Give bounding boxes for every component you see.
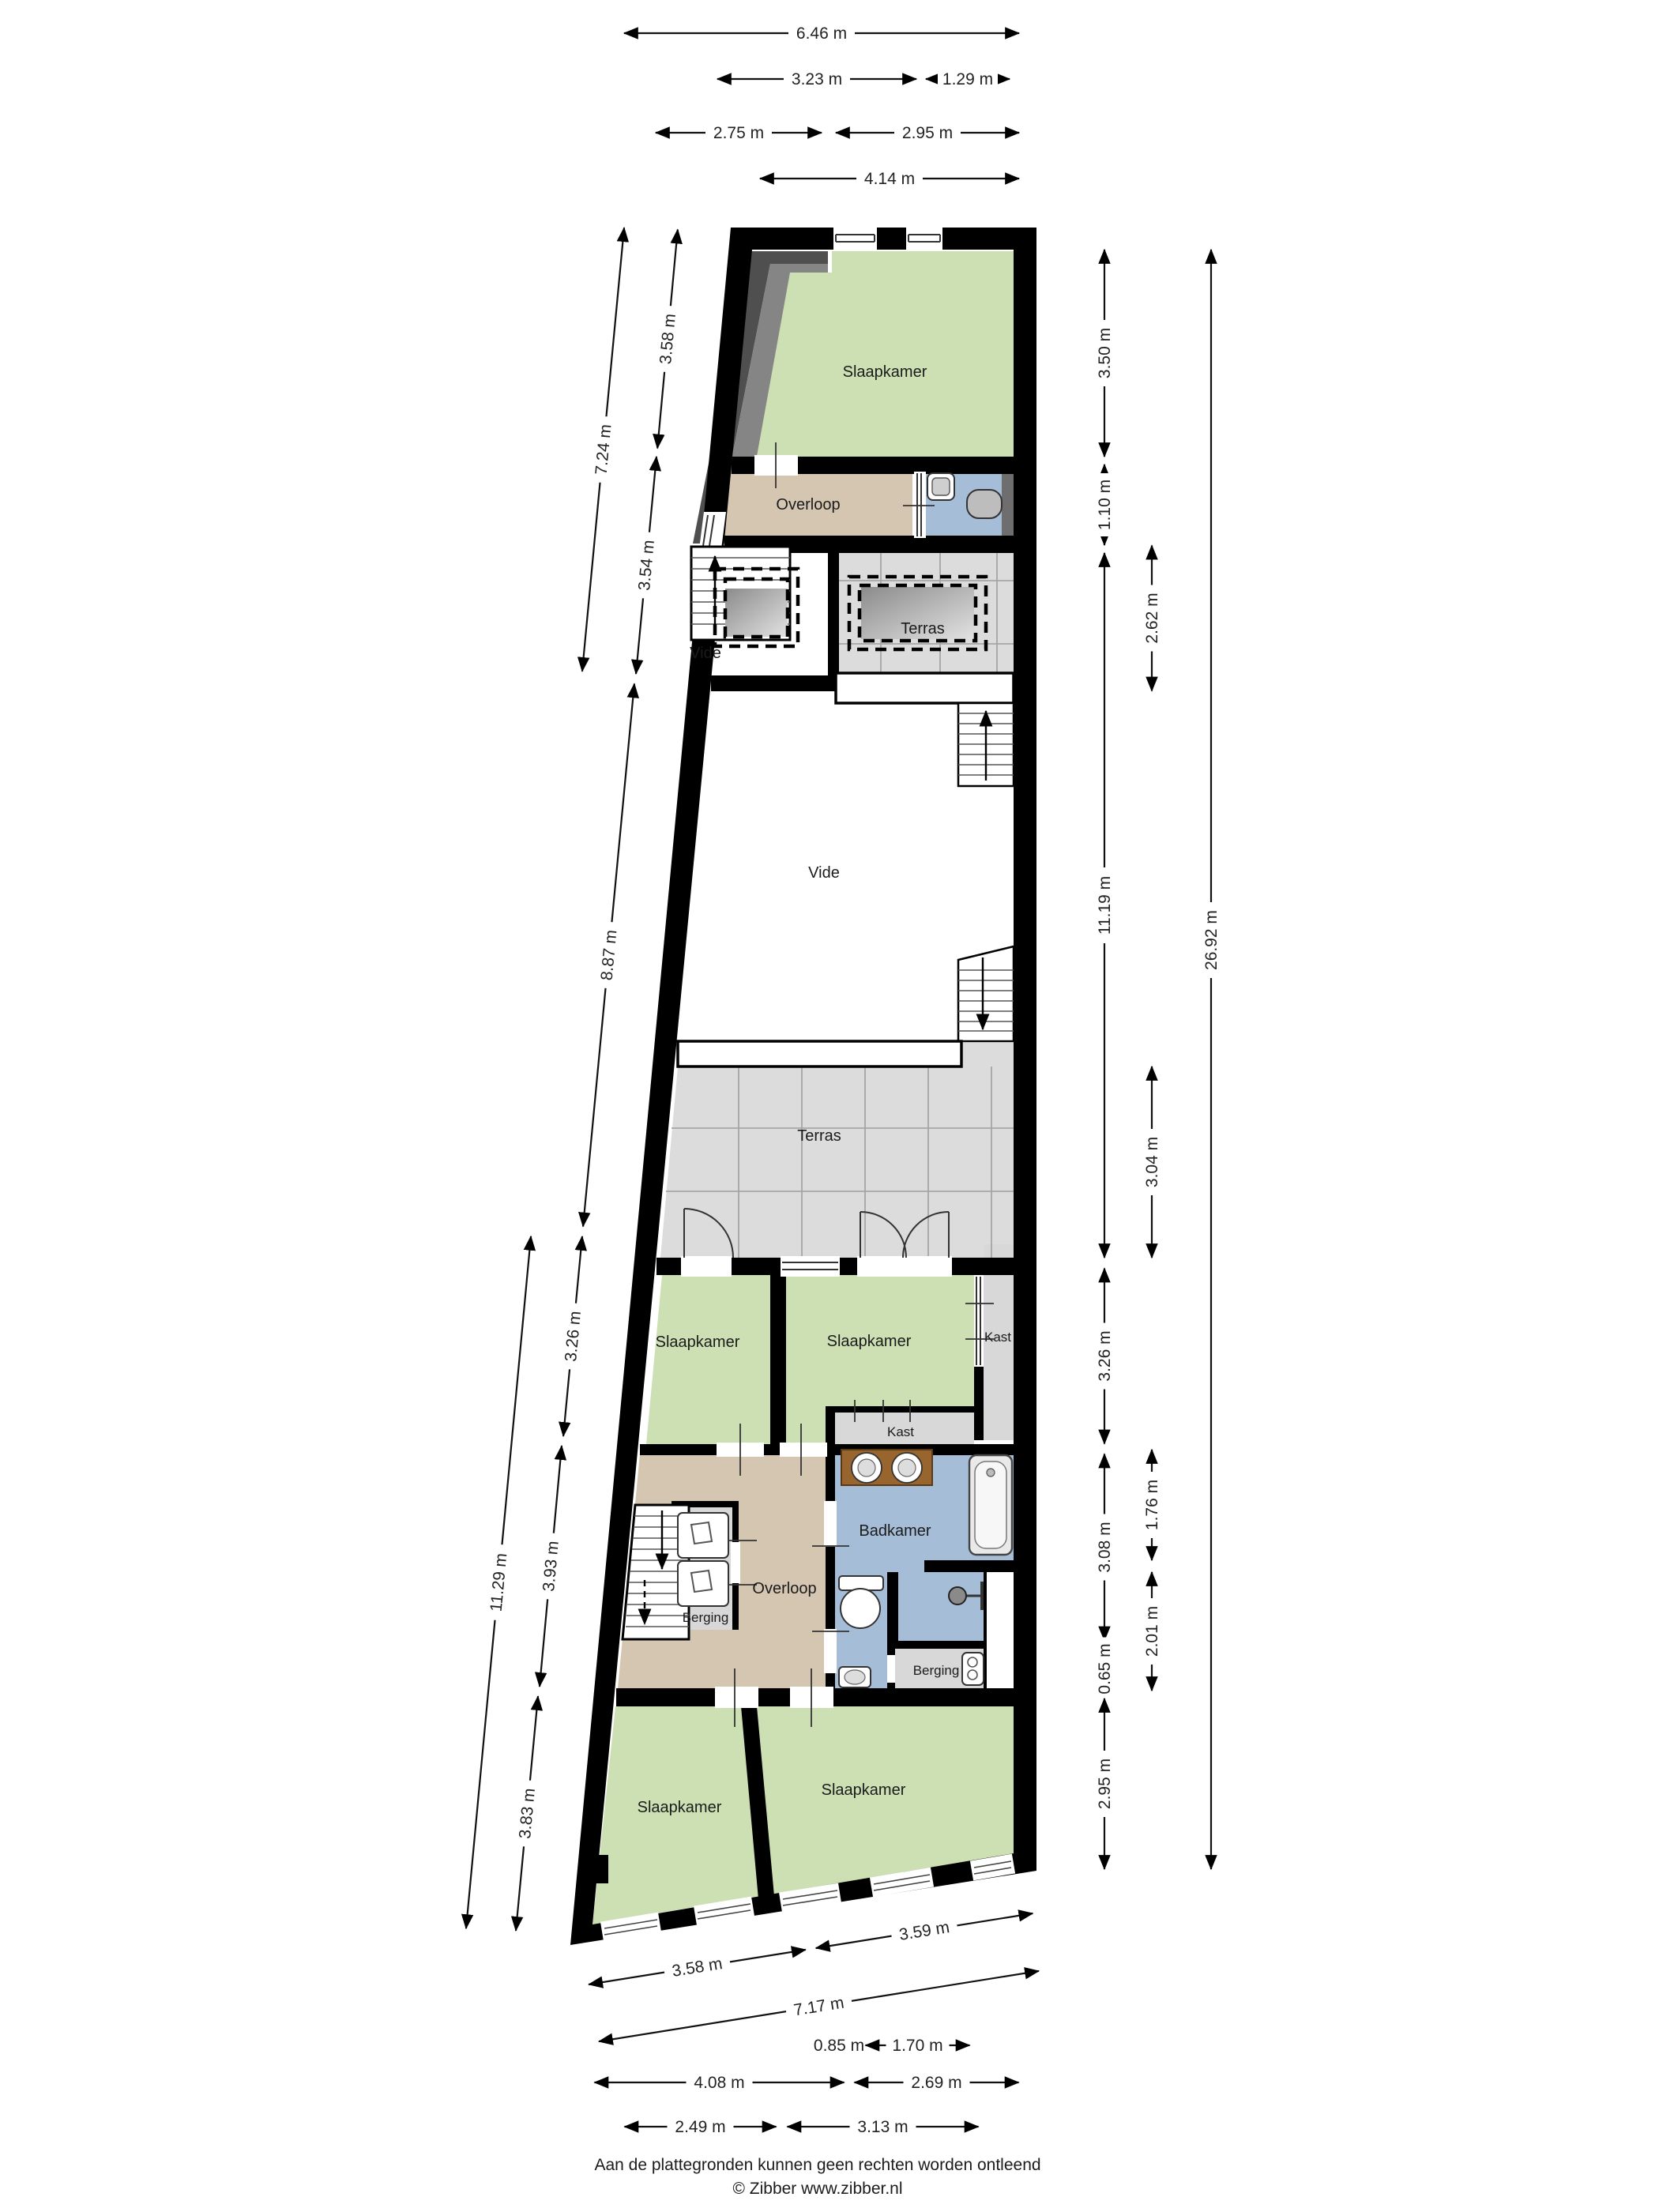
label-vide-main: Vide bbox=[808, 864, 840, 882]
svg-text:3.58 m: 3.58 m bbox=[656, 313, 679, 365]
label-badkamer: Badkamer bbox=[859, 1522, 931, 1540]
label-slaapkamer-mid-left: Slaapkamer bbox=[656, 1334, 740, 1351]
label-kast-bottom: Kast bbox=[887, 1424, 914, 1439]
railing-vide bbox=[678, 1041, 961, 1066]
washing-machine-icon bbox=[678, 1513, 728, 1558]
svg-text:2.49 m: 2.49 m bbox=[675, 2118, 725, 2136]
svg-text:26.92 m: 26.92 m bbox=[1202, 910, 1221, 970]
dim-top-323: 3.23 m bbox=[717, 70, 916, 88]
svg-text:3.13 m: 3.13 m bbox=[857, 2118, 908, 2136]
svg-text:3.58 m: 3.58 m bbox=[671, 1954, 724, 1981]
svg-text:1.76 m: 1.76 m bbox=[1143, 1480, 1161, 1530]
footer-disclaimer: Aan de plattegronden kunnen geen rechten… bbox=[594, 2156, 1040, 2174]
dim-bottom-085: 0.85 m bbox=[814, 2037, 864, 2055]
dim-left-383: 3.83 m bbox=[506, 1695, 547, 1932]
dim-right-350: 3.50 m bbox=[1095, 250, 1114, 457]
dim-right-1119: 11.19 m bbox=[1095, 553, 1114, 1258]
dim-left-724: 7.24 m bbox=[573, 227, 634, 672]
svg-text:2.69 m: 2.69 m bbox=[911, 2074, 961, 2092]
svg-text:2.62 m: 2.62 m bbox=[1143, 592, 1161, 643]
dim-top-129: 1.29 m bbox=[926, 70, 1010, 88]
railing-top-terras bbox=[836, 673, 1014, 703]
dim-right-262: 2.62 m bbox=[1142, 546, 1161, 691]
dim-right-065: 0.65 m bbox=[1095, 1638, 1114, 1701]
stairs-terras-down bbox=[958, 703, 1014, 786]
label-slaapkamer-bottom-right: Slaapkamer bbox=[822, 1781, 906, 1799]
label-slaapkamer-mid-right: Slaapkamer bbox=[827, 1333, 912, 1350]
floor-plan: Slaapkamer Overloop Vide Terras Vide Ter… bbox=[0, 0, 1659, 2212]
dim-top-414: 4.14 m bbox=[760, 169, 1019, 188]
dim-left-393: 3.93 m bbox=[530, 1445, 571, 1687]
dim-bottom-249: 2.49 m bbox=[625, 2117, 777, 2136]
svg-text:3.50 m: 3.50 m bbox=[1096, 328, 1114, 378]
svg-text:11.19 m: 11.19 m bbox=[1096, 876, 1114, 935]
dim-top-646: 6.46 m bbox=[624, 24, 1019, 43]
label-terras-top: Terras bbox=[901, 620, 945, 638]
label-berging-right: Berging bbox=[913, 1663, 960, 1678]
shaft bbox=[988, 1572, 1014, 1688]
dim-right-176: 1.76 m bbox=[1142, 1450, 1161, 1560]
dim-bottom-170: 1.70 m bbox=[866, 2036, 970, 2055]
svg-text:4.14 m: 4.14 m bbox=[864, 170, 915, 188]
dim-bottom-359: 3.59 m bbox=[814, 1904, 1034, 1958]
svg-text:3.26 m: 3.26 m bbox=[562, 1311, 585, 1363]
dim-top-275: 2.75 m bbox=[656, 123, 822, 142]
dim-right-308: 3.08 m bbox=[1095, 1454, 1114, 1641]
svg-text:3.04 m: 3.04 m bbox=[1143, 1137, 1161, 1187]
dim-left-354: 3.54 m bbox=[626, 456, 666, 675]
svg-text:2.95 m: 2.95 m bbox=[902, 124, 953, 142]
svg-text:4.08 m: 4.08 m bbox=[694, 2074, 744, 2092]
room-badkamer-lower bbox=[835, 1560, 924, 1572]
washing-machine-icon bbox=[678, 1561, 728, 1606]
label-terras-main: Terras bbox=[797, 1127, 841, 1145]
room-shower bbox=[898, 1572, 985, 1641]
dim-right-201: 2.01 m bbox=[1142, 1572, 1161, 1691]
svg-text:11.29 m: 11.29 m bbox=[487, 1552, 511, 1612]
svg-text:7.24 m: 7.24 m bbox=[592, 423, 615, 476]
stairs-vide-down bbox=[958, 946, 1014, 1041]
room-terras-main bbox=[660, 1043, 1014, 1258]
svg-text:8.87 m: 8.87 m bbox=[598, 929, 621, 981]
dim-bottom-358: 3.58 m bbox=[587, 1940, 807, 1994]
svg-text:3.59 m: 3.59 m bbox=[898, 1918, 951, 1944]
dim-right-295: 2.95 m bbox=[1095, 1698, 1114, 1869]
dim-right-304: 3.04 m bbox=[1142, 1066, 1161, 1258]
svg-text:2.01 m: 2.01 m bbox=[1143, 1606, 1161, 1657]
svg-text:1.70 m: 1.70 m bbox=[892, 2037, 942, 2055]
svg-text:3.93 m: 3.93 m bbox=[540, 1540, 562, 1593]
label-overloop-main: Overloop bbox=[752, 1580, 816, 1597]
svg-text:6.46 m: 6.46 m bbox=[796, 24, 847, 43]
toilet-icon bbox=[967, 490, 1002, 518]
svg-text:7.17 m: 7.17 m bbox=[792, 1994, 845, 2020]
dim-bottom-408: 4.08 m bbox=[595, 2073, 845, 2092]
dim-left-358: 3.58 m bbox=[648, 228, 687, 449]
dim-left-326: 3.26 m bbox=[554, 1236, 592, 1437]
label-slaapkamer-top: Slaapkamer bbox=[843, 363, 927, 381]
dim-top-295: 2.95 m bbox=[836, 123, 1019, 142]
svg-text:1.10 m: 1.10 m bbox=[1096, 480, 1114, 530]
svg-text:0.85 m: 0.85 m bbox=[814, 2037, 864, 2055]
svg-text:3.83 m: 3.83 m bbox=[516, 1788, 539, 1840]
svg-text:2.75 m: 2.75 m bbox=[713, 124, 764, 142]
stairs-top bbox=[691, 547, 798, 646]
room-slaapkamer-top bbox=[750, 251, 1014, 457]
label-vide-small: Vide bbox=[690, 645, 721, 662]
svg-text:1.29 m: 1.29 m bbox=[942, 70, 993, 88]
svg-text:3.08 m: 3.08 m bbox=[1096, 1522, 1114, 1572]
dim-bottom-269: 2.69 m bbox=[855, 2073, 1019, 2092]
dim-right-110: 1.10 m bbox=[1095, 465, 1114, 545]
label-kast-right: Kast bbox=[984, 1330, 1011, 1345]
label-overloop-top: Overloop bbox=[776, 496, 840, 513]
footer-credit: © Zibber www.zibber.nl bbox=[732, 2180, 902, 2198]
svg-text:3.26 m: 3.26 m bbox=[1096, 1330, 1114, 1381]
dim-right-2692: 26.92 m bbox=[1202, 250, 1221, 1869]
label-berging-left: Berging bbox=[683, 1610, 729, 1625]
svg-text:3.54 m: 3.54 m bbox=[635, 540, 658, 592]
room-slaapkamer-mid-left bbox=[646, 1275, 770, 1444]
label-slaapkamer-bottom-left: Slaapkamer bbox=[638, 1799, 722, 1816]
svg-text:3.23 m: 3.23 m bbox=[792, 70, 842, 88]
dim-right-326: 3.26 m bbox=[1095, 1269, 1114, 1444]
svg-text:2.95 m: 2.95 m bbox=[1096, 1759, 1114, 1809]
dim-bottom-313: 3.13 m bbox=[788, 2117, 979, 2136]
duct-top bbox=[1002, 472, 1014, 538]
svg-text:0.65 m: 0.65 m bbox=[1096, 1643, 1114, 1694]
dim-left-887: 8.87 m bbox=[574, 683, 644, 1227]
